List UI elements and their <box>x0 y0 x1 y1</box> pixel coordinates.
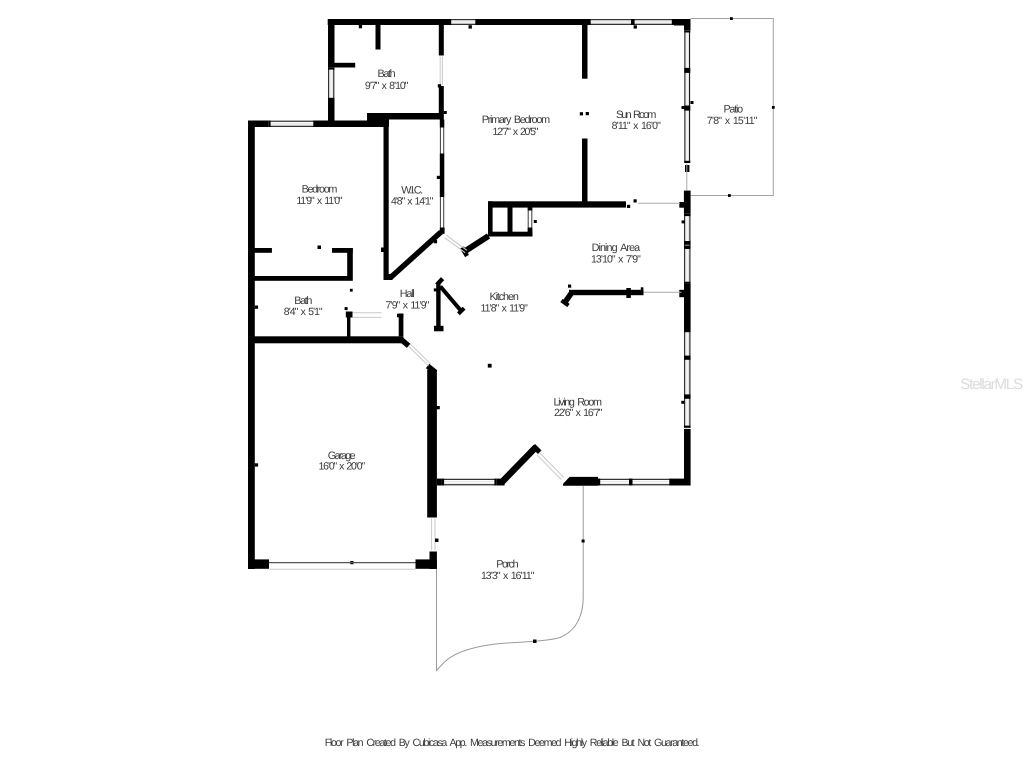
svg-text:7’8" x 15’11": 7’8" x 15’11" <box>707 115 758 127</box>
svg-text:13’10" x 7’9": 13’10" x 7’9" <box>591 253 641 265</box>
svg-text:W.I.C.: W.I.C. <box>401 184 423 196</box>
svg-text:Primary Bedroom: Primary Bedroom <box>482 114 550 126</box>
svg-text:Patio: Patio <box>723 103 743 115</box>
svg-text:Porch: Porch <box>496 559 518 571</box>
svg-text:12’7" x 20’5": 12’7" x 20’5" <box>493 126 539 138</box>
svg-text:Floor Plan Created By Cubicasa: Floor Plan Created By Cubicasa App. Meas… <box>325 737 700 749</box>
svg-text:StellarMLS: StellarMLS <box>960 376 1023 393</box>
svg-text:Bath: Bath <box>378 68 396 80</box>
svg-text:Hall: Hall <box>400 288 415 300</box>
svg-text:9’7" x 8’10": 9’7" x 8’10" <box>365 80 409 92</box>
svg-text:16’0" x 20’0": 16’0" x 20’0" <box>319 460 366 472</box>
svg-text:8’11" x 16’0": 8’11" x 16’0" <box>612 120 661 132</box>
svg-text:Bedroom: Bedroom <box>302 184 338 196</box>
svg-text:11’8" x 11’9": 11’8" x 11’9" <box>481 302 529 314</box>
svg-text:13’3" x 16’11": 13’3" x 16’11" <box>481 570 535 582</box>
svg-text:7’9" x 11’9": 7’9" x 11’9" <box>386 299 430 311</box>
svg-text:4’8" x 14’1": 4’8" x 14’1" <box>391 196 434 208</box>
svg-text:11’9" x 11’0": 11’9" x 11’0" <box>296 195 343 207</box>
svg-text:Kitchen: Kitchen <box>490 291 519 303</box>
svg-text:22’6" x 16’7": 22’6" x 16’7" <box>554 407 603 419</box>
svg-text:8’4" x 5’1": 8’4" x 5’1" <box>284 306 323 318</box>
